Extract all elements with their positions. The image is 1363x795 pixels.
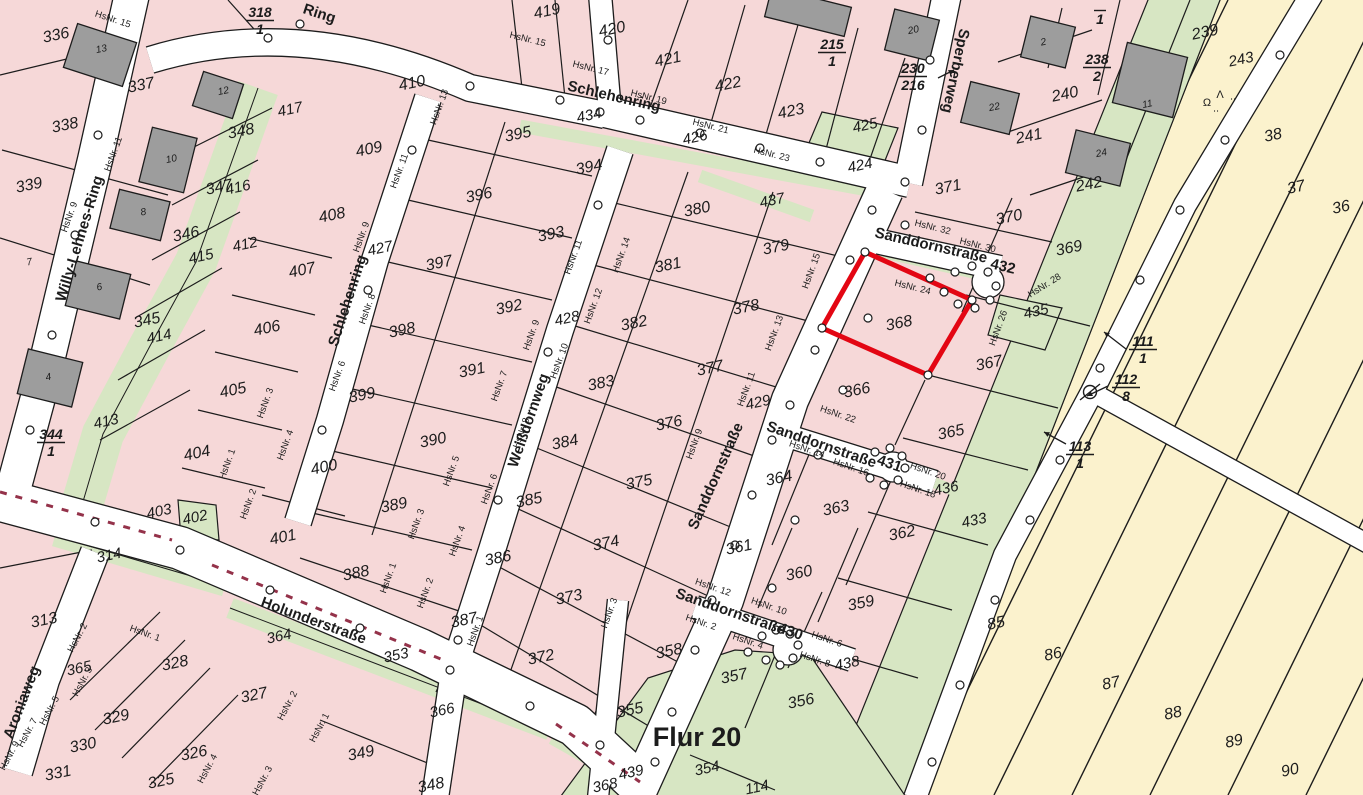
- parcel-label-38: 38: [1263, 125, 1284, 145]
- svg-text:8: 8: [1122, 388, 1130, 404]
- svg-text:1: 1: [828, 53, 836, 69]
- svg-text:1: 1: [256, 21, 264, 37]
- parcel-label-88: 88: [1163, 703, 1184, 723]
- svg-text:238: 238: [1084, 51, 1109, 67]
- svg-text:112: 112: [1115, 371, 1138, 387]
- svg-text:111: 111: [1132, 333, 1153, 349]
- svg-text:1: 1: [1076, 455, 1084, 471]
- svg-text:216: 216: [900, 77, 925, 93]
- svg-text:2: 2: [1092, 68, 1101, 84]
- svg-text:1: 1: [1096, 11, 1104, 27]
- svg-text:344: 344: [39, 426, 63, 442]
- parcel-label-89: 89: [1224, 731, 1245, 751]
- svg-text:113: 113: [1069, 438, 1092, 454]
- svg-text:230: 230: [900, 60, 925, 76]
- parcel-label-85: 85: [986, 613, 1007, 633]
- svg-text:318: 318: [248, 4, 272, 20]
- tree-symbol: ∙∙: [1213, 105, 1219, 117]
- svg-text:1: 1: [47, 443, 55, 459]
- parcel-label-36: 36: [1331, 197, 1352, 217]
- svg-text:1: 1: [1139, 350, 1147, 366]
- tree-symbol: ∙∙: [1230, 93, 1236, 105]
- parcel-label-86: 86: [1043, 644, 1064, 664]
- svg-text:215: 215: [819, 36, 844, 52]
- map-canvas: ΩΛ∙∙∙∙ 336337338339348347346345313328329…: [0, 0, 1363, 795]
- building-number-11: 11: [1141, 98, 1153, 111]
- flur-label: Flur 20: [653, 722, 742, 752]
- tree-symbol: Ω: [1203, 97, 1211, 109]
- cadastral-map: ΩΛ∙∙∙∙ 336337338339348347346345313328329…: [0, 0, 1363, 795]
- parcel-label-90: 90: [1280, 760, 1301, 780]
- tree-symbol: Λ: [1216, 89, 1224, 101]
